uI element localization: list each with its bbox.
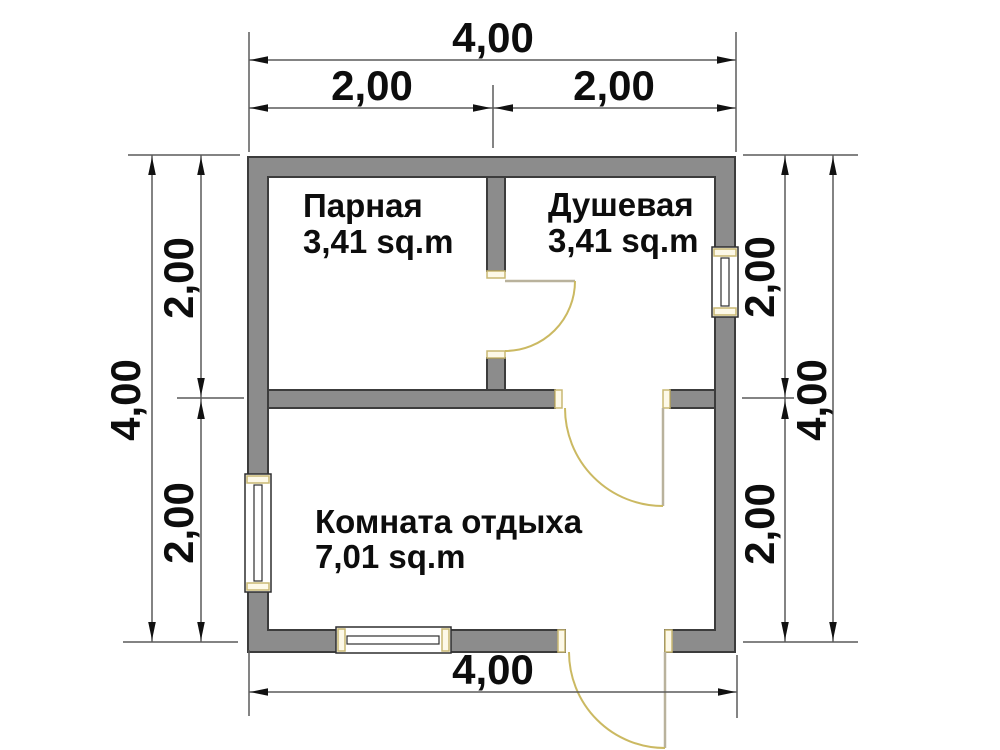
dim-right-bottom: 2,00 [736,483,783,565]
dim-left-top: 2,00 [155,237,202,319]
interior-wall-horizontal-left [268,390,555,408]
door-jamb [487,271,505,278]
door-swing-dushevaya-komnata [565,408,663,506]
room-area-parnaya: 3,41 sq.m [303,223,453,260]
arrowhead [718,688,736,696]
arrowhead [197,157,205,175]
room-name-dushevaya: Душевая [548,186,694,223]
arrowhead [829,622,837,640]
door-jamb [487,351,505,358]
arrowhead [829,157,837,175]
window-glazing [347,636,439,644]
interior-wall-vertical-lower [487,358,505,390]
interior-wall-vertical-upper [487,177,505,271]
room-name-parnaya: Парная [303,187,423,224]
window-right [712,247,738,317]
room-area-dushevaya: 3,41 sq.m [548,222,698,259]
dim-right-total: 4,00 [788,359,835,441]
window-bottom [336,627,451,653]
floor-plan-svg: 4,00 2,00 2,00 4,00 4,00 2,00 2,00 4,00 … [0,0,1000,750]
dim-bottom-total: 4,00 [452,646,534,693]
window-sill [338,629,345,651]
window-sill [247,583,269,590]
window-left [245,474,271,592]
door-jamb [555,390,562,408]
window-sill [714,249,736,256]
dim-left-bottom: 2,00 [155,482,202,564]
door-swing-entrance [569,652,665,748]
dim-top-left: 2,00 [331,62,413,109]
interior-wall-horizontal-right [670,390,715,408]
dim-top-total: 4,00 [452,14,534,61]
window-glazing [721,258,729,306]
arrowhead [495,104,513,112]
room-name-komnata-otdyha: Комната отдыха [315,503,583,540]
window-glazing [254,485,262,581]
door-jamb [558,630,565,652]
arrowhead [148,622,156,640]
door-swing-parnaya-dushevaya [505,281,575,351]
arrowhead [717,56,735,64]
arrowhead [250,104,268,112]
arrowhead [197,378,205,396]
arrowhead [250,688,268,696]
arrowhead [781,622,789,640]
arrowhead [148,157,156,175]
window-sill [247,476,269,483]
door-jambs [487,271,672,652]
floor-plan-page: 4,00 2,00 2,00 4,00 4,00 2,00 2,00 4,00 … [0,0,1000,750]
room-area-komnata-otdyha: 7,01 sq.m [315,538,465,575]
arrowhead [197,622,205,640]
arrowhead [781,157,789,175]
dim-top-right: 2,00 [573,62,655,109]
door-jamb [665,630,672,652]
arrowhead [717,104,735,112]
arrowhead [197,401,205,419]
window-sill [714,308,736,315]
door-jamb [663,390,670,408]
window-sill [442,629,449,651]
arrowhead [473,104,491,112]
dim-left-total: 4,00 [102,359,149,441]
arrowhead [250,56,268,64]
dim-right-top: 2,00 [736,236,783,318]
